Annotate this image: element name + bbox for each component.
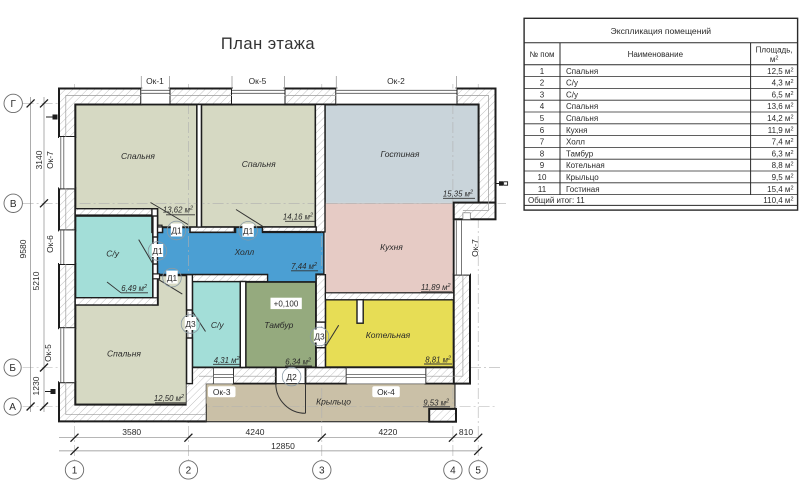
svg-text:13,62 м2: 13,62 м2 — [163, 206, 193, 215]
svg-text:1: 1 — [72, 465, 78, 476]
svg-text:№ пом: № пом — [529, 50, 554, 59]
svg-text:Спальня: Спальня — [242, 159, 276, 169]
svg-text:6,3 м2: 6,3 м2 — [772, 149, 794, 158]
svg-text:Тамбур: Тамбур — [566, 149, 594, 158]
svg-text:8,81 м2: 8,81 м2 — [425, 356, 451, 365]
svg-text:13,6 м2: 13,6 м2 — [767, 102, 793, 111]
svg-text:4,3 м2: 4,3 м2 — [772, 79, 794, 88]
svg-text:6: 6 — [540, 126, 545, 135]
svg-text:11: 11 — [538, 185, 547, 194]
svg-text:Крыльцо: Крыльцо — [316, 397, 351, 407]
svg-text:Спальня: Спальня — [566, 102, 598, 111]
svg-text:+0,100: +0,100 — [274, 299, 299, 308]
svg-text:Ок-7: Ок-7 — [470, 239, 480, 257]
svg-text:1230: 1230 — [31, 376, 41, 395]
svg-text:110,4 м2: 110,4 м2 — [763, 196, 793, 205]
svg-text:3580: 3580 — [122, 427, 141, 437]
svg-text:С/у: С/у — [106, 249, 120, 259]
svg-text:Спальня: Спальня — [107, 349, 141, 359]
svg-text:С/у: С/у — [566, 79, 578, 88]
svg-text:Площадь,: Площадь, — [756, 46, 793, 55]
svg-text:Кухня: Кухня — [380, 242, 403, 252]
svg-text:Кухня: Кухня — [566, 126, 587, 135]
svg-text:12,5 м2: 12,5 м2 — [767, 67, 793, 76]
svg-text:А: А — [9, 402, 16, 413]
svg-text:4220: 4220 — [378, 427, 397, 437]
svg-text:14,2 м2: 14,2 м2 — [767, 114, 793, 123]
svg-text:4: 4 — [450, 465, 456, 476]
svg-text:Спальня: Спальня — [566, 114, 598, 123]
svg-text:С/у: С/у — [566, 90, 578, 99]
svg-text:12,50 м2: 12,50 м2 — [154, 394, 184, 403]
svg-text:4: 4 — [540, 102, 545, 111]
svg-text:Д3: Д3 — [185, 319, 196, 329]
svg-text:Б: Б — [9, 363, 16, 374]
svg-text:9,5 м2: 9,5 м2 — [772, 173, 794, 182]
svg-text:Гостиная: Гостиная — [381, 149, 420, 159]
svg-text:810: 810 — [459, 427, 473, 437]
svg-text:С/у: С/у — [211, 320, 225, 330]
svg-text:Д1: Д1 — [171, 226, 182, 236]
svg-text:5: 5 — [475, 465, 481, 476]
svg-text:Ок-2: Ок-2 — [387, 76, 405, 86]
svg-text:9: 9 — [540, 161, 545, 170]
svg-text:Г: Г — [10, 99, 16, 110]
svg-text:Спальня: Спальня — [566, 67, 598, 76]
svg-text:Экспликация помещений: Экспликация помещений — [611, 26, 712, 36]
svg-text:Ок-3: Ок-3 — [213, 387, 231, 397]
svg-text:Наименование: Наименование — [628, 50, 684, 59]
svg-text:План этажа: План этажа — [221, 35, 316, 53]
svg-text:Ок-1: Ок-1 — [146, 76, 164, 86]
svg-text:5210: 5210 — [31, 271, 41, 290]
svg-text:Крыльцо: Крыльцо — [566, 173, 599, 182]
svg-text:Д1: Д1 — [167, 273, 178, 283]
svg-text:2: 2 — [540, 79, 545, 88]
svg-text:14,16 м2: 14,16 м2 — [283, 212, 313, 221]
svg-text:4240: 4240 — [246, 427, 265, 437]
svg-text:Общий итог: 11: Общий итог: 11 — [528, 196, 585, 205]
svg-text:Ок-4: Ок-4 — [377, 387, 395, 397]
svg-text:10: 10 — [538, 173, 547, 182]
svg-text:В: В — [10, 199, 17, 210]
svg-text:Спальня: Спальня — [121, 151, 155, 161]
svg-text:8,8 м2: 8,8 м2 — [772, 161, 794, 170]
svg-text:1: 1 — [540, 67, 545, 76]
svg-text:7: 7 — [540, 138, 545, 147]
svg-text:6,5 м2: 6,5 м2 — [772, 90, 794, 99]
svg-text:12850: 12850 — [271, 441, 295, 451]
svg-text:15,4 м2: 15,4 м2 — [767, 185, 793, 194]
svg-text:11,89 м2: 11,89 м2 — [421, 283, 451, 292]
svg-text:7,4 м2: 7,4 м2 — [772, 138, 794, 147]
svg-text:Д3: Д3 — [314, 332, 325, 342]
svg-text:11,9 м2: 11,9 м2 — [768, 126, 794, 135]
svg-text:Ок-5: Ок-5 — [249, 76, 267, 86]
svg-text:Д1: Д1 — [243, 226, 254, 236]
svg-text:Гостиная: Гостиная — [566, 185, 600, 194]
svg-text:Холл: Холл — [234, 247, 255, 257]
svg-text:8: 8 — [540, 149, 545, 158]
svg-text:9580: 9580 — [18, 239, 28, 258]
svg-text:2: 2 — [186, 465, 192, 476]
svg-text:Ок-6: Ок-6 — [45, 235, 55, 253]
svg-text:Д1: Д1 — [152, 246, 163, 256]
svg-text:6,49 м2: 6,49 м2 — [121, 284, 147, 293]
svg-text:Ок-5: Ок-5 — [43, 344, 53, 362]
svg-text:9,53 м2: 9,53 м2 — [423, 398, 449, 407]
svg-text:3140: 3140 — [34, 150, 44, 169]
svg-text:6,34 м2: 6,34 м2 — [285, 358, 311, 367]
svg-text:5: 5 — [540, 114, 545, 123]
svg-text:Котельная: Котельная — [366, 330, 411, 340]
svg-text:Холл: Холл — [566, 138, 585, 147]
svg-text:7,44 м2: 7,44 м2 — [291, 262, 317, 271]
svg-text:3: 3 — [540, 90, 545, 99]
svg-text:Котельная: Котельная — [566, 161, 605, 170]
svg-text:Д2: Д2 — [286, 372, 297, 382]
svg-text:Ок-7: Ок-7 — [45, 151, 55, 169]
svg-text:15,35 м2: 15,35 м2 — [443, 190, 473, 199]
svg-text:4,31 м2: 4,31 м2 — [214, 356, 240, 365]
svg-text:Тамбур: Тамбур — [264, 320, 293, 330]
svg-text:3: 3 — [319, 465, 325, 476]
